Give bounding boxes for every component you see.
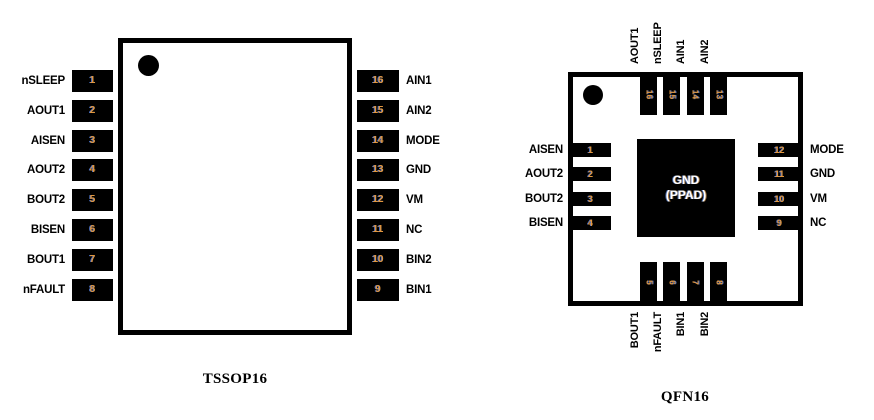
pin-label-NC: NC [406,219,486,241]
pin-number-9: 9 [357,279,399,301]
pin-label-BIN1: BIN1 [674,312,688,382]
pin-label-nSLEEP: nSLEEP [0,70,65,92]
pin-label-AIN2: AIN2 [406,100,486,122]
pin-number-2: 2 [570,167,611,181]
pin-number-6: 6 [72,219,113,241]
pin-label-AOUT2: AOUT2 [483,167,563,181]
pin-number-5: 5 [640,263,657,303]
pin-number-15: 15 [357,100,399,122]
pin-number-7: 7 [72,249,113,271]
pin-number-13: 13 [710,75,727,115]
pin-label-BIN2: BIN2 [698,312,712,382]
pin-number-12: 12 [758,143,801,157]
pin-label-nFAULT: nFAULT [651,312,665,382]
pin-label-BISEN: BISEN [0,219,65,241]
pin-number-9: 9 [758,216,801,230]
pin-label-nFAULT: nFAULT [0,279,65,301]
pin-number-3: 3 [570,192,611,206]
pin-number-15: 15 [663,75,680,115]
package-title-tssop16: TSSOP16 [155,371,315,388]
pin-label-AISEN: AISEN [0,130,65,152]
pin-number-6: 6 [663,263,680,303]
pin-number-1: 1 [570,143,611,157]
tssop16-body [118,38,352,335]
thermal-pad-label-line1: GND [673,173,700,188]
pin-number-10: 10 [357,249,399,271]
pin-number-1: 1 [72,70,113,92]
pin-number-4: 4 [570,216,611,230]
pin-label-AIN1: AIN1 [674,0,688,64]
pin-number-16: 16 [640,75,657,115]
pin-label-BIN1: BIN1 [406,279,486,301]
pin-number-3: 3 [72,130,113,152]
thermal-pad-label-line2: (PPAD) [666,188,706,203]
thermal-pad: GND (PPAD) [637,139,735,237]
pin-label-BOUT2: BOUT2 [483,192,563,206]
pin-label-AOUT1: AOUT1 [0,100,65,122]
pin-number-14: 14 [357,130,399,152]
pin1-marker-dot [583,85,603,105]
pin-label-BOUT2: BOUT2 [0,189,65,211]
pin-number-2: 2 [72,100,113,122]
pin1-marker-dot [138,55,159,76]
pin-number-14: 14 [687,75,704,115]
pin-label-AIN2: AIN2 [698,0,712,64]
pin-number-10: 10 [758,192,801,206]
pin-label-AOUT1: AOUT1 [628,0,642,64]
pin-number-13: 13 [357,159,399,181]
pin-label-AISEN: AISEN [483,143,563,157]
pin-label-BOUT1: BOUT1 [0,249,65,271]
pin-label-BIN2: BIN2 [406,249,486,271]
pin-label-NC: NC [810,216,872,230]
pin-number-11: 11 [758,167,801,181]
pin-label-nSLEEP: nSLEEP [651,0,665,64]
pin-label-VM: VM [810,192,872,206]
pin-label-GND: GND [406,159,486,181]
pin-label-VM: VM [406,189,486,211]
pin-number-5: 5 [72,189,113,211]
pin-label-GND: GND [810,167,872,181]
pin-label-AIN1: AIN1 [406,70,486,92]
pin-number-7: 7 [687,263,704,303]
pin-label-BISEN: BISEN [483,216,563,230]
package-title-qfn16: QFN16 [605,389,765,406]
pin-label-BOUT1: BOUT1 [628,312,642,382]
pin-number-16: 16 [357,70,399,92]
pin-number-4: 4 [72,159,113,181]
pin-label-AOUT2: AOUT2 [0,159,65,181]
pin-number-8: 8 [72,279,113,301]
pin-number-11: 11 [357,219,399,241]
pin-label-MODE: MODE [406,130,486,152]
pin-number-12: 12 [357,189,399,211]
pin-number-8: 8 [710,263,727,303]
pin-label-MODE: MODE [810,143,872,157]
pinout-diagram: 1nSLEEP2AOUT13AISEN4AOUT25BOUT26BISEN7BO… [0,0,874,420]
